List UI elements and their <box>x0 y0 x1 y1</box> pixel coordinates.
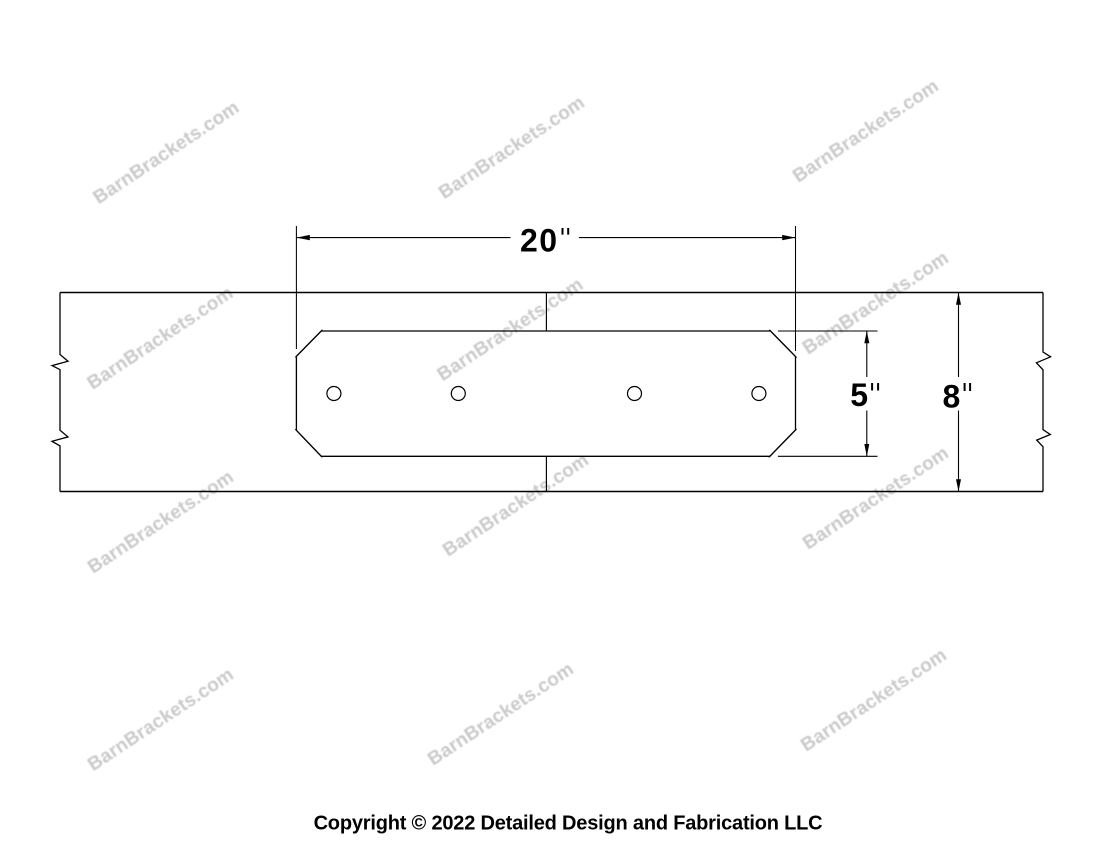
svg-text:BarnBrackets.com: BarnBrackets.com <box>90 97 244 209</box>
svg-text:BarnBrackets.com: BarnBrackets.com <box>84 283 238 395</box>
svg-text:BarnBrackets.com: BarnBrackets.com <box>434 274 588 386</box>
svg-text:8: 8 <box>943 378 961 414</box>
svg-text:BarnBrackets.com: BarnBrackets.com <box>799 248 953 360</box>
svg-text:BarnBrackets.com: BarnBrackets.com <box>435 92 589 204</box>
svg-text:BarnBrackets.com: BarnBrackets.com <box>439 450 593 562</box>
svg-text:20: 20 <box>520 222 559 258</box>
svg-text:Copyright © 2022 Detailed Desi: Copyright © 2022 Detailed Design and Fab… <box>314 813 823 835</box>
svg-text:BarnBrackets.com: BarnBrackets.com <box>424 659 578 771</box>
svg-text:BarnBrackets.com: BarnBrackets.com <box>799 443 953 555</box>
svg-text:BarnBrackets.com: BarnBrackets.com <box>789 76 943 188</box>
svg-text:5: 5 <box>850 377 868 413</box>
svg-text:BarnBrackets.com: BarnBrackets.com <box>84 467 238 579</box>
svg-text:BarnBrackets.com: BarnBrackets.com <box>797 645 951 757</box>
svg-text:BarnBrackets.com: BarnBrackets.com <box>84 664 238 776</box>
